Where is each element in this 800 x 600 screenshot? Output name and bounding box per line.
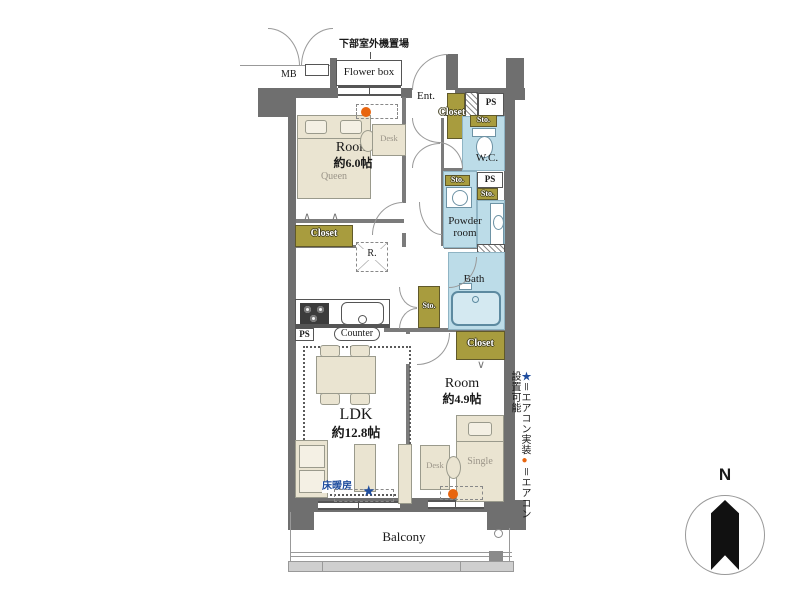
legend-star-text: ＝エアコン実装 [519, 382, 530, 456]
ps-kitchen-label: PS [295, 330, 314, 339]
sto-wc-label: Sto. [470, 116, 497, 124]
balcony-label: Balcony [378, 530, 430, 544]
aircon-legend: ★＝エアコン実装●＝エアコン設置可能 [509, 371, 529, 521]
single-pillow [468, 422, 492, 436]
balcony-right-line [509, 528, 510, 561]
wall-top-right-stub [506, 58, 524, 90]
room1-desk-label: Desk [372, 134, 406, 143]
entry-closet-door-2 [412, 143, 440, 168]
burner-icon-3 [310, 315, 317, 322]
room2-ac-zone [440, 486, 483, 500]
ldk-name: LDK [326, 407, 386, 424]
wc-label: W.C. [470, 153, 504, 165]
balcony-bottom-line-2 [290, 556, 512, 557]
ldk-balcony-window [318, 501, 400, 510]
ldk-ac-star: ★ [362, 485, 375, 501]
dining-chair-3 [320, 393, 340, 405]
room2-ac-dot [448, 489, 458, 499]
hanger-icon-3: ∨ [477, 360, 485, 371]
sink-drain-icon [358, 315, 367, 324]
ldk-window-tick [358, 501, 359, 510]
powder-door-arc [419, 202, 442, 235]
counter-label: Counter [334, 329, 380, 340]
balcony-bottom-line-1 [290, 552, 512, 553]
sto-mid-label: Sto. [477, 190, 498, 198]
room2-chair [446, 456, 461, 479]
legend-dot-icon: ● [519, 455, 530, 467]
washing-machine-drum-icon [452, 190, 468, 206]
room1-ac-dot [361, 107, 371, 117]
vanity-sink-icon [493, 215, 504, 230]
tv-board [398, 444, 412, 504]
hanger-icon-2: ∧ [331, 212, 339, 223]
entry-closet-door-1 [412, 118, 440, 143]
queen-pillow-right [340, 120, 362, 134]
burner-icon-1 [304, 306, 311, 313]
balcony-strip-tick-2 [460, 562, 461, 571]
service-door-left-arc [268, 28, 300, 66]
dining-table [316, 356, 376, 394]
queen-pillow-left [305, 120, 327, 134]
hall-sto-door-1 [399, 287, 417, 308]
outdoor-unit-leader [370, 52, 371, 59]
balcony-drain-icon [494, 529, 503, 538]
wc-door-arc [438, 142, 463, 169]
sto-powder-label: Sto. [445, 176, 470, 184]
mb-label: MB [281, 70, 297, 81]
room2-name: Room [427, 377, 497, 392]
service-door-right-arc [301, 28, 333, 66]
balcony-strip-tick-1 [322, 562, 323, 571]
fridge-label: R. [362, 249, 382, 260]
single-bed-line [457, 441, 503, 442]
room1-east-wall-low [402, 233, 406, 247]
flowerbox-window-tick [369, 86, 370, 96]
outdoor-unit-label: 下部室外機置場 [336, 40, 412, 51]
entrance-door-arc [412, 54, 448, 90]
sofa-cushion-1 [299, 445, 325, 468]
room1-door-arc [372, 202, 403, 235]
floor-plan: 下部室外機置場 MB Flower box Ent. PS Closet Sto… [0, 0, 800, 600]
powder-room-label: Powder room [442, 216, 488, 239]
ps-top-label: PS [478, 98, 504, 107]
legend-star-icon: ★ [519, 371, 530, 382]
bathtub-drain-icon [472, 296, 479, 303]
hanger-icon-1: ∧ [303, 212, 311, 223]
wall-bottom-left-block [288, 496, 314, 530]
queen-label: Queen [297, 172, 371, 183]
burner-icon-2 [317, 306, 324, 313]
meter-box [305, 64, 329, 76]
room1-size: 約6.0帖 [318, 157, 388, 170]
sto-hall-label: Sto. [417, 302, 441, 310]
room1-closet-label: Closet [295, 229, 353, 240]
flower-box-label: Flower box [336, 67, 402, 79]
balcony-partition-box [489, 551, 503, 561]
entrance-label: Ent. [417, 91, 435, 103]
balcony-left-line [290, 512, 291, 561]
room2-door-arc [417, 333, 450, 365]
compass-north-label: N [710, 466, 740, 484]
single-label: Single [456, 457, 504, 468]
room2-size: 約4.9帖 [427, 393, 497, 406]
ldk-size: 約12.8帖 [321, 426, 391, 440]
dining-chair-4 [350, 393, 370, 405]
ps-mid-label: PS [477, 175, 503, 184]
room2-closet-label: Closet [456, 339, 505, 350]
hall-sto-door-2 [399, 308, 417, 329]
